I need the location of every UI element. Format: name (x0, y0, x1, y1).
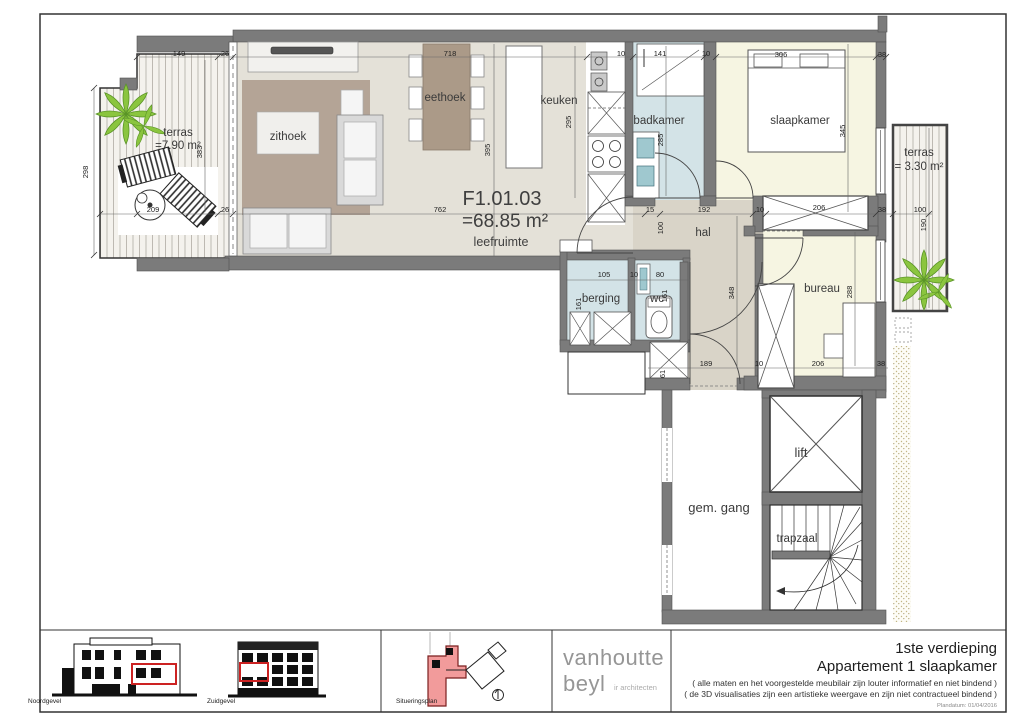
unit-code: F1.01.03 (463, 188, 542, 210)
dimension-label: 26 (221, 205, 229, 214)
elevation-noordgevel (52, 638, 197, 695)
room-label: =7.90 m² (155, 140, 201, 152)
dimension-label: 206 (813, 203, 826, 212)
title-block: 1ste verdieping Appartement 1 slaapkamer… (684, 640, 997, 709)
dimension-label: 80 (656, 270, 664, 279)
elevation-zuidgevel (228, 642, 326, 696)
room-label: gem. gang (688, 500, 749, 515)
sand-strip (893, 318, 911, 622)
unit-area-room: leefruimte (474, 235, 529, 249)
site-plan (428, 632, 506, 706)
disclaimer-1: ( alle maten en het voorgestelde meubila… (692, 678, 997, 688)
dimension-label: 189 (700, 359, 713, 368)
dimension-label: 345 (838, 125, 847, 138)
window-slaapkamer (876, 128, 885, 194)
tech-room (568, 352, 645, 394)
dimension-label: 288 (845, 286, 854, 299)
dimension-label: 10 (630, 270, 638, 279)
room-label: lift (795, 445, 808, 460)
window-terrace-slider (229, 42, 237, 256)
dimension-label: 38 (877, 359, 885, 368)
dimension-label: 100 (656, 222, 665, 235)
plant-right (894, 250, 954, 310)
room-label: slaapkamer (770, 115, 830, 127)
room-label: keuken (540, 95, 577, 107)
dimension-label: 295 (564, 116, 573, 129)
dimension-label: 206 (812, 359, 825, 368)
hatched-duct (650, 342, 688, 378)
room-label: eethoek (425, 92, 466, 104)
title-apartment: Appartement 1 slaapkamer (817, 658, 997, 675)
shower (637, 44, 704, 96)
title-floor: 1ste verdieping (895, 640, 997, 657)
dimension-label: 61 (658, 370, 667, 378)
dimension-label: 762 (434, 205, 447, 214)
dimension-label: 192 (698, 205, 711, 214)
north-arrow (493, 689, 504, 701)
stairwell (770, 505, 862, 610)
dimension-label: 105 (598, 270, 611, 279)
floorplan-drawing: 1492671810141103063820926762151921020638… (0, 0, 1024, 724)
floorplan-page: 1492671810141103063820926762151921020638… (0, 0, 1024, 724)
dimension-label: 10 (756, 205, 764, 214)
dimension-label: 190 (919, 219, 928, 232)
logo-text-2: beyl (563, 671, 605, 696)
dimension-label: 298 (81, 166, 90, 179)
room-label: = 3.30 m² (895, 161, 944, 173)
dimension-label: 10 (702, 49, 710, 58)
dimension-label: 38 (878, 50, 886, 59)
dimension-label: 10 (755, 359, 763, 368)
dimension-label: 149 (173, 49, 186, 58)
room-label: terras (904, 147, 934, 159)
dimension-label: 306 (775, 50, 788, 59)
dimension-label: 718 (444, 49, 457, 58)
dimension-label: 141 (654, 49, 667, 58)
label-situeringsplan: Situeringsplan (396, 698, 438, 705)
bureau-wardrobe (758, 284, 794, 388)
window-bureau (876, 240, 885, 302)
room-label: wc (649, 293, 664, 305)
bed (748, 50, 845, 152)
cooktop (588, 136, 625, 172)
dimension-label: 285 (656, 134, 665, 147)
sofa-right (337, 115, 383, 205)
stair-landing-rail (772, 551, 830, 559)
room-label: trapzaal (777, 533, 818, 545)
dimension-label: 15 (646, 205, 654, 214)
kitchen-island (506, 46, 542, 168)
room-label: hal (695, 227, 710, 239)
dimension-label: 209 (147, 205, 160, 214)
room-label: terras (163, 127, 193, 139)
logo-text-1: vanhoutte (563, 645, 664, 670)
dimension-label: 10 (617, 49, 625, 58)
dimension-label: 38 (878, 205, 886, 214)
label-noordgevel: Noordgevel (28, 698, 62, 705)
dimension-label: 26 (221, 49, 229, 58)
bedroom-closet (763, 196, 868, 230)
plan-date: Plandatum: 01/04/2016 (937, 703, 997, 709)
disclaimer-2: ( de 3D visualisaties zijn een artistiek… (684, 689, 997, 699)
room-label: bureau (804, 283, 840, 295)
dimension-label: 348 (727, 287, 736, 300)
label-zuidgevel: Zuidgevel (207, 698, 236, 705)
lift-shaft (770, 396, 862, 492)
room-label: zithoek (270, 131, 307, 143)
dimension-label: 100 (914, 205, 927, 214)
berging-door-panel (560, 240, 592, 252)
dimension-label: 395 (483, 144, 492, 157)
berging-cabinets (570, 312, 631, 345)
unit-area: =68.85 m² (462, 211, 548, 232)
room-label: berging (582, 293, 620, 305)
logo-subtitle: ir architecten (614, 683, 657, 692)
room-label: badkamer (633, 115, 684, 127)
sofa-bottom (243, 208, 331, 254)
architect-logo: vanhoutte beyl ir architecten (563, 645, 664, 696)
